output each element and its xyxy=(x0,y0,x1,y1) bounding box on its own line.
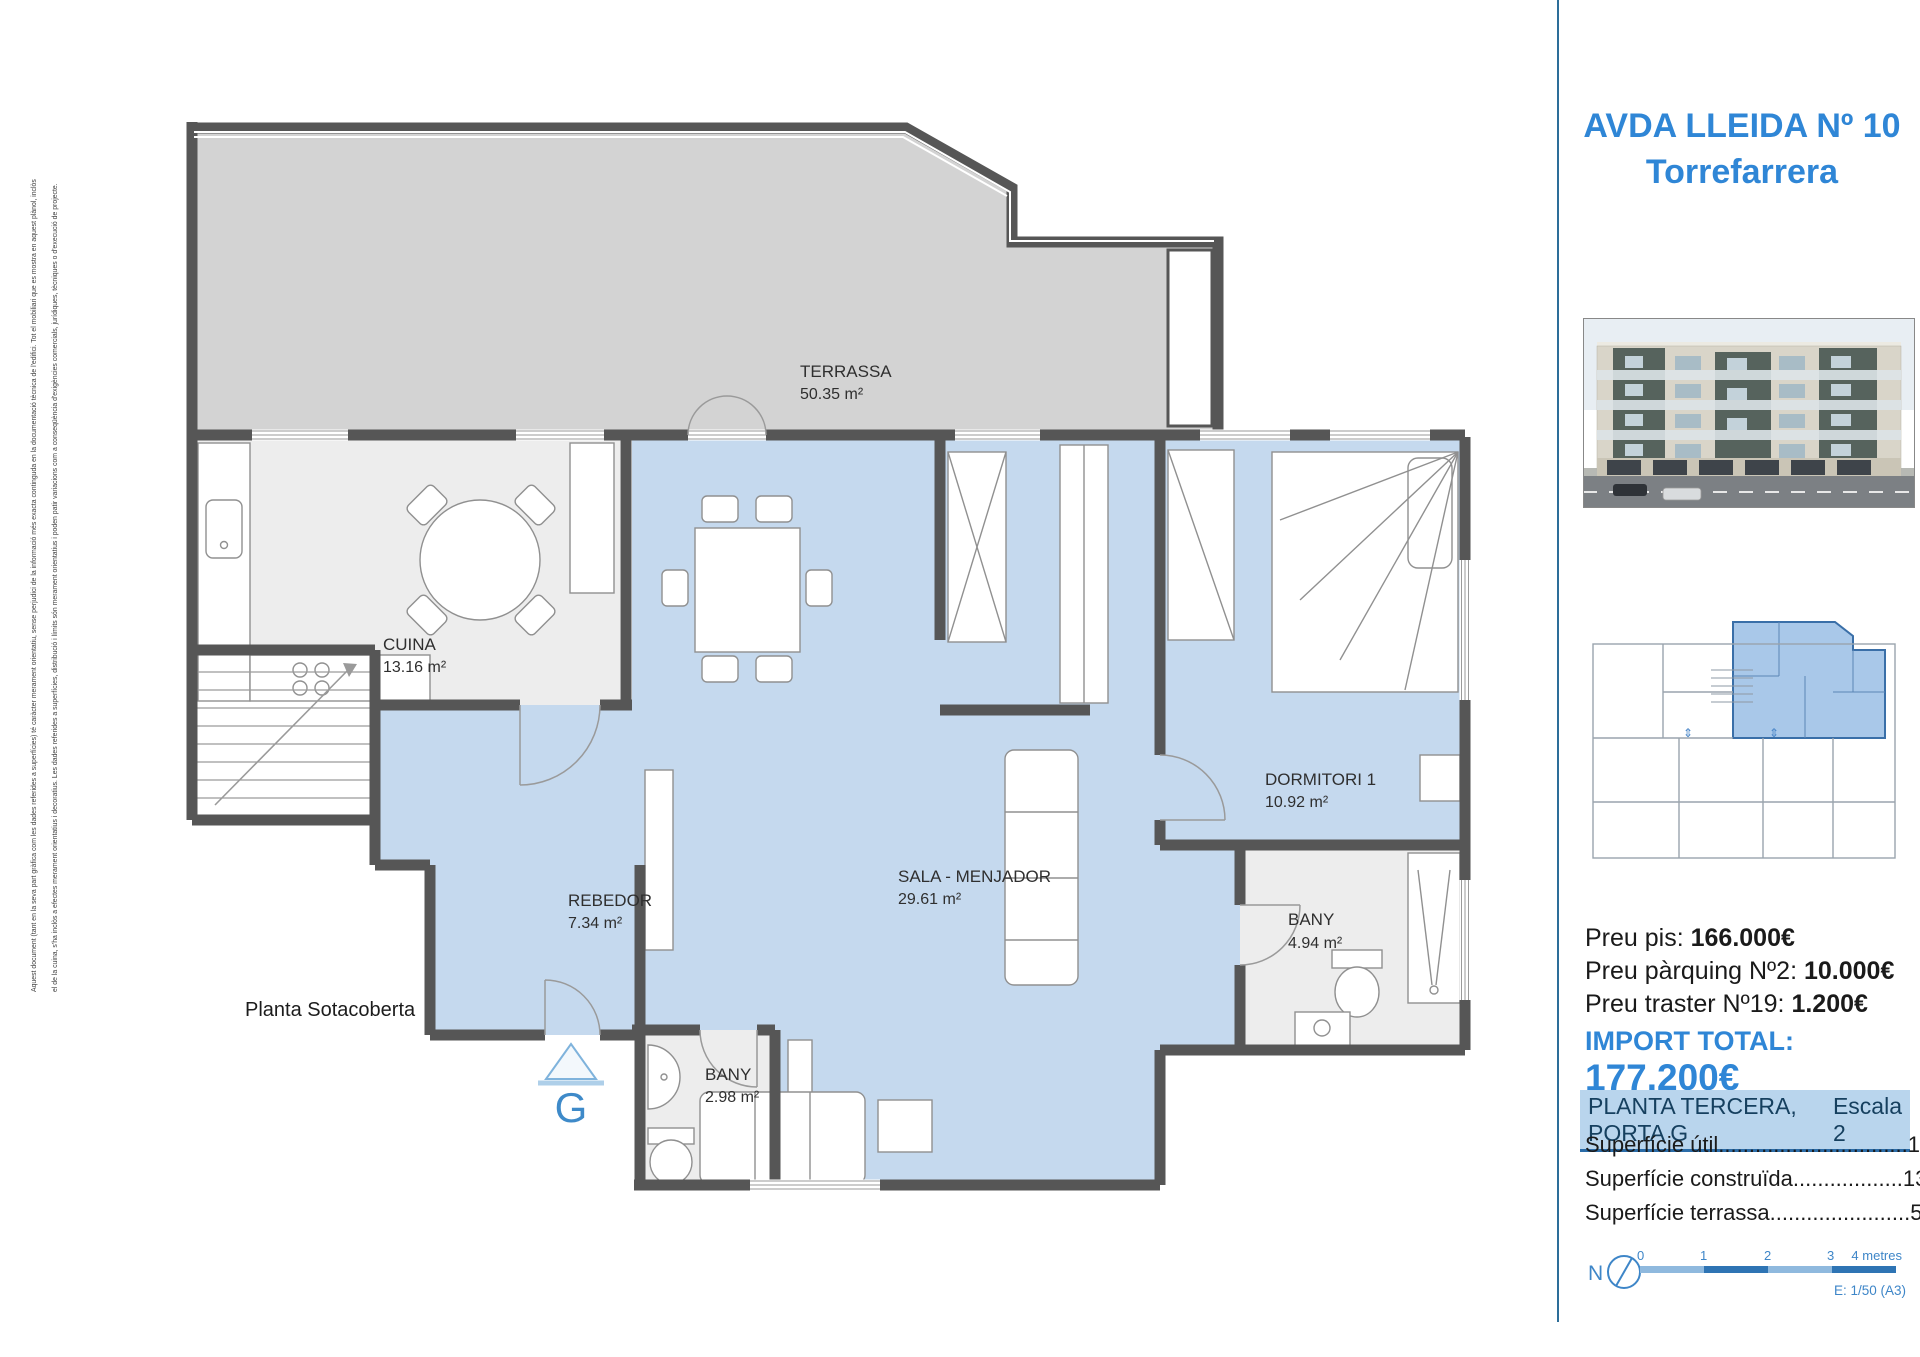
room-label-bany2: BANY xyxy=(705,1065,751,1084)
scale-bar xyxy=(1640,1266,1896,1273)
room-area-bany2: 2.98 m² xyxy=(705,1089,760,1106)
entrance-marker: G xyxy=(538,1044,604,1131)
title-line1: AVDA LLEIDA Nº 10 xyxy=(1572,104,1912,150)
building-photo xyxy=(1583,318,1915,508)
key-plan: ⇕ ⇕ xyxy=(1583,606,1905,880)
price-label: Preu pis: xyxy=(1585,924,1691,952)
price-block: Preu pis: 166.000€ Preu pàrquing Nº2: 10… xyxy=(1585,922,1920,1099)
key-plan-highlight xyxy=(1733,622,1885,738)
terrassa-floor xyxy=(192,128,1218,435)
price-line-parquing: Preu pàrquing Nº2: 10.000€ xyxy=(1585,955,1920,988)
price-value: 1.200€ xyxy=(1791,990,1867,1018)
scale-note: E: 1/50 (A3) xyxy=(1760,1283,1906,1298)
surface-row-terrassa: Superfície terrassa.....................… xyxy=(1585,1196,1915,1230)
entrance-label: G xyxy=(555,1084,588,1131)
room-label-terrassa: TERRASSA xyxy=(800,362,892,381)
price-value: 166.000€ xyxy=(1691,924,1795,952)
room-area-terrassa: 50.35 m² xyxy=(800,386,864,403)
price-label: Preu traster Nº19: xyxy=(1585,990,1791,1018)
room-area-rebedor: 7.34 m² xyxy=(568,915,623,932)
price-line-pis: Preu pis: 166.000€ xyxy=(1585,922,1920,955)
surface-row-util: Superfície útil.........................… xyxy=(1585,1128,1915,1162)
floor-plan: TERRASSA 50.35 m² CUINA 13.16 m² SALA - … xyxy=(0,0,1560,1357)
room-area-dormitori: 10.92 m² xyxy=(1265,794,1329,811)
room-label-dormitori: DORMITORI 1 xyxy=(1265,770,1376,789)
terrace-shaft xyxy=(1168,250,1212,426)
key-plan-arrow-2: ⇕ xyxy=(1769,726,1779,740)
rebedor-floor xyxy=(375,705,640,865)
surface-row-construida: Superfície construïda..................1… xyxy=(1585,1162,1915,1196)
room-area-sala: 29.61 m² xyxy=(898,891,962,908)
price-label: Preu pàrquing Nº2: xyxy=(1585,957,1804,985)
page-title: AVDA LLEIDA Nº 10 Torrefarrera xyxy=(1572,104,1912,196)
price-line-traster: Preu traster Nº19: 1.200€ xyxy=(1585,988,1920,1021)
north-label: N xyxy=(1588,1262,1603,1285)
room-area-cuina: 13.16 m² xyxy=(383,659,447,676)
scale-tick-0: 0 xyxy=(1637,1248,1644,1263)
title-line2: Torrefarrera xyxy=(1572,150,1912,196)
scale-tick-2: 2 xyxy=(1764,1248,1771,1263)
room-label-cuina: CUINA xyxy=(383,635,437,654)
scale-tick-1: 1 xyxy=(1700,1248,1707,1263)
room-label-bany1: BANY xyxy=(1288,910,1334,929)
price-value: 10.000€ xyxy=(1804,957,1894,985)
surface-table: Superfície útil.........................… xyxy=(1585,1128,1915,1230)
import-total-label: IMPORT TOTAL: xyxy=(1585,1026,1794,1056)
floor-label: Planta Sotacoberta xyxy=(245,999,416,1021)
scale-tick-4: 4 metres xyxy=(1840,1248,1902,1263)
room-area-bany1: 4.94 m² xyxy=(1288,935,1343,952)
room-label-sala: SALA - MENJADOR xyxy=(898,867,1051,886)
key-plan-arrow-1: ⇕ xyxy=(1683,726,1693,740)
scale-tick-3: 3 xyxy=(1827,1248,1834,1263)
import-total-line: IMPORT TOTAL: 177.200€ xyxy=(1585,1026,1920,1099)
sidebar-divider xyxy=(1557,0,1559,1322)
room-label-rebedor: REBEDOR xyxy=(568,891,652,910)
